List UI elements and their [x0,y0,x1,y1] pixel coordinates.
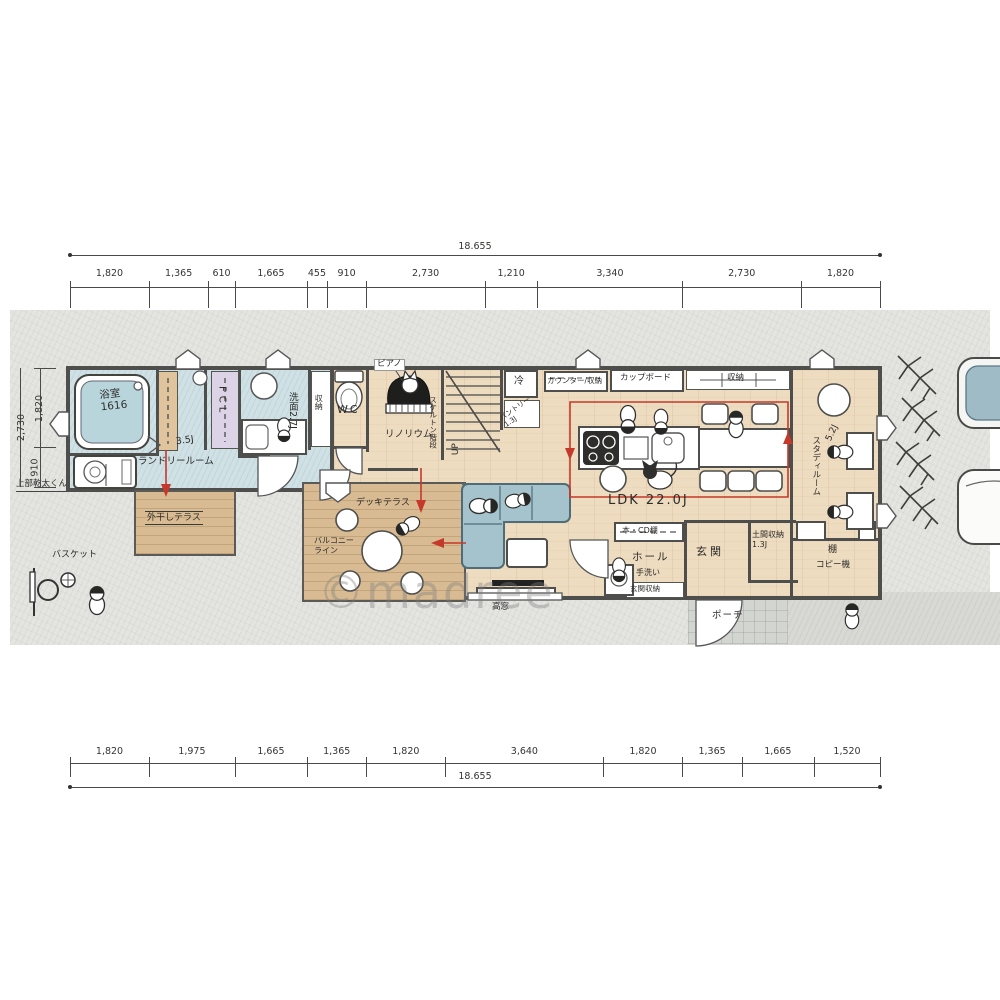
dim-tick [682,281,683,308]
dining-table [698,428,790,468]
dim-label: 1,365 [323,746,350,757]
dim-tick [149,281,150,308]
wall [368,468,418,471]
dim-tick [880,757,881,777]
deck-label: デッキテラス [356,498,410,508]
dim-label: 1,365 [698,746,725,757]
dim-tick [235,757,236,777]
dim-tick [70,281,71,308]
coffee-table [506,538,548,568]
closet-strip-label: 収納 [314,394,323,410]
dim-tick [742,757,743,777]
dim-label: 1,820 [392,746,419,757]
dim-tick [366,281,367,308]
dim-label: 1,665 [257,268,284,279]
room-label-ldk: LDK 22.0J [608,494,689,509]
dim-tick [537,281,538,308]
dim-endpoint [878,253,882,257]
dim-tick [682,757,683,777]
dim-endpoint [68,253,72,257]
porch-label: ポーチ [712,611,744,622]
dim-label: 610 [212,268,230,279]
dim-label: 455 [308,268,326,279]
watermark: ©madree [318,566,555,619]
room-label-washroom: 洗面2.7J [286,392,297,429]
dim-tick [307,757,308,777]
wall [366,368,369,452]
counter-label: カウンター/収納 [547,377,602,386]
wall [334,446,368,449]
dim-label: 2,730 [728,268,755,279]
room-label-wc: WC [337,404,360,417]
wall [790,368,793,598]
dim-label: 2,730 [412,268,439,279]
utility-wing-floor [66,366,334,492]
shelf-unit [796,521,826,541]
dim-tick [327,281,328,308]
dim-tick [149,757,150,777]
room-label-laundry: ランドリールーム [138,457,214,468]
dim-label: 1,665 [257,746,284,757]
dim-label: 1,210 [498,268,525,279]
doma-label: 土間収納1.3J [752,530,784,551]
drying-terrace-label: 外干しテラス [145,511,203,525]
dim-tick [366,757,367,777]
dim-label: 910 [338,268,356,279]
fridge-label: 冷 [514,376,524,388]
wall [441,368,444,460]
genkan-storage-label: 玄関収納 [630,585,660,594]
hall-label: ホール [632,551,670,563]
wall [240,455,270,458]
wall [204,368,207,450]
dim-endpoint [68,785,72,789]
study-desk-2 [846,492,874,530]
dim-endpoint [878,785,882,789]
dim-label: 1,665 [764,746,791,757]
dryer-note-label: 上部乾太くん [16,480,67,492]
room-label-study: スタディルーム [810,436,820,496]
dim-tick [70,757,71,777]
floor-plan: 浴室1616 ランドリールーム 3.5J FCL 洗面2.7J 収納 WC リノ… [0,0,1000,1000]
dim-label: 1,820 [96,746,123,757]
dim-tick [801,281,802,308]
dim-tick [880,281,881,308]
dim-tick [208,281,209,308]
dim-line [70,787,880,788]
dim-line [70,287,880,288]
dim-label: 3,340 [596,268,623,279]
stairs-up-label: UP [451,443,461,455]
wall [684,520,687,600]
genkan-label: 玄関 [696,546,724,559]
dim-line [70,255,880,256]
cupboard-label: カップボード [620,374,671,384]
wall [686,520,796,523]
room-label-bath: 浴室1616 [99,387,128,414]
shelf-label: 棚 [828,545,837,555]
dim-label: 1,520 [833,746,860,757]
dim-tick [235,281,236,308]
dim-label: 1,820 [96,268,123,279]
dim-label: 1,365 [165,268,192,279]
basket-label: バスケット [52,550,97,560]
dim-tick [603,757,604,777]
top-closet-label: 収納 [727,374,744,384]
wall [748,520,751,582]
dim-tick [445,757,446,777]
room-label-fcl: FCL [216,386,228,416]
dim-line [70,763,880,764]
dim-label: 1,820 [629,746,656,757]
stairs-label: スケルトン階段 [428,396,437,449]
dim-tick [485,281,486,308]
dim-tick [814,757,815,777]
bookshelf-label: 本・CD棚 [622,526,658,535]
kitchen-island [578,426,700,470]
dim-label: 1,975 [178,746,205,757]
copier-label: コピー機 [816,561,850,571]
dim-label: 18.655 [458,771,491,782]
handwash-label: 手洗い [636,568,660,577]
room-label-linoleum: リノリウム [385,430,433,441]
balcony-line-label: バルコニーライン [314,536,354,557]
piano-label: ピアノ [374,359,405,371]
study-desk-1 [846,432,874,470]
dim-label: 1,820 [827,268,854,279]
dim-label: 3,640 [511,746,538,757]
dim-label: 18.655 [458,241,491,252]
dim-tick [307,281,308,308]
